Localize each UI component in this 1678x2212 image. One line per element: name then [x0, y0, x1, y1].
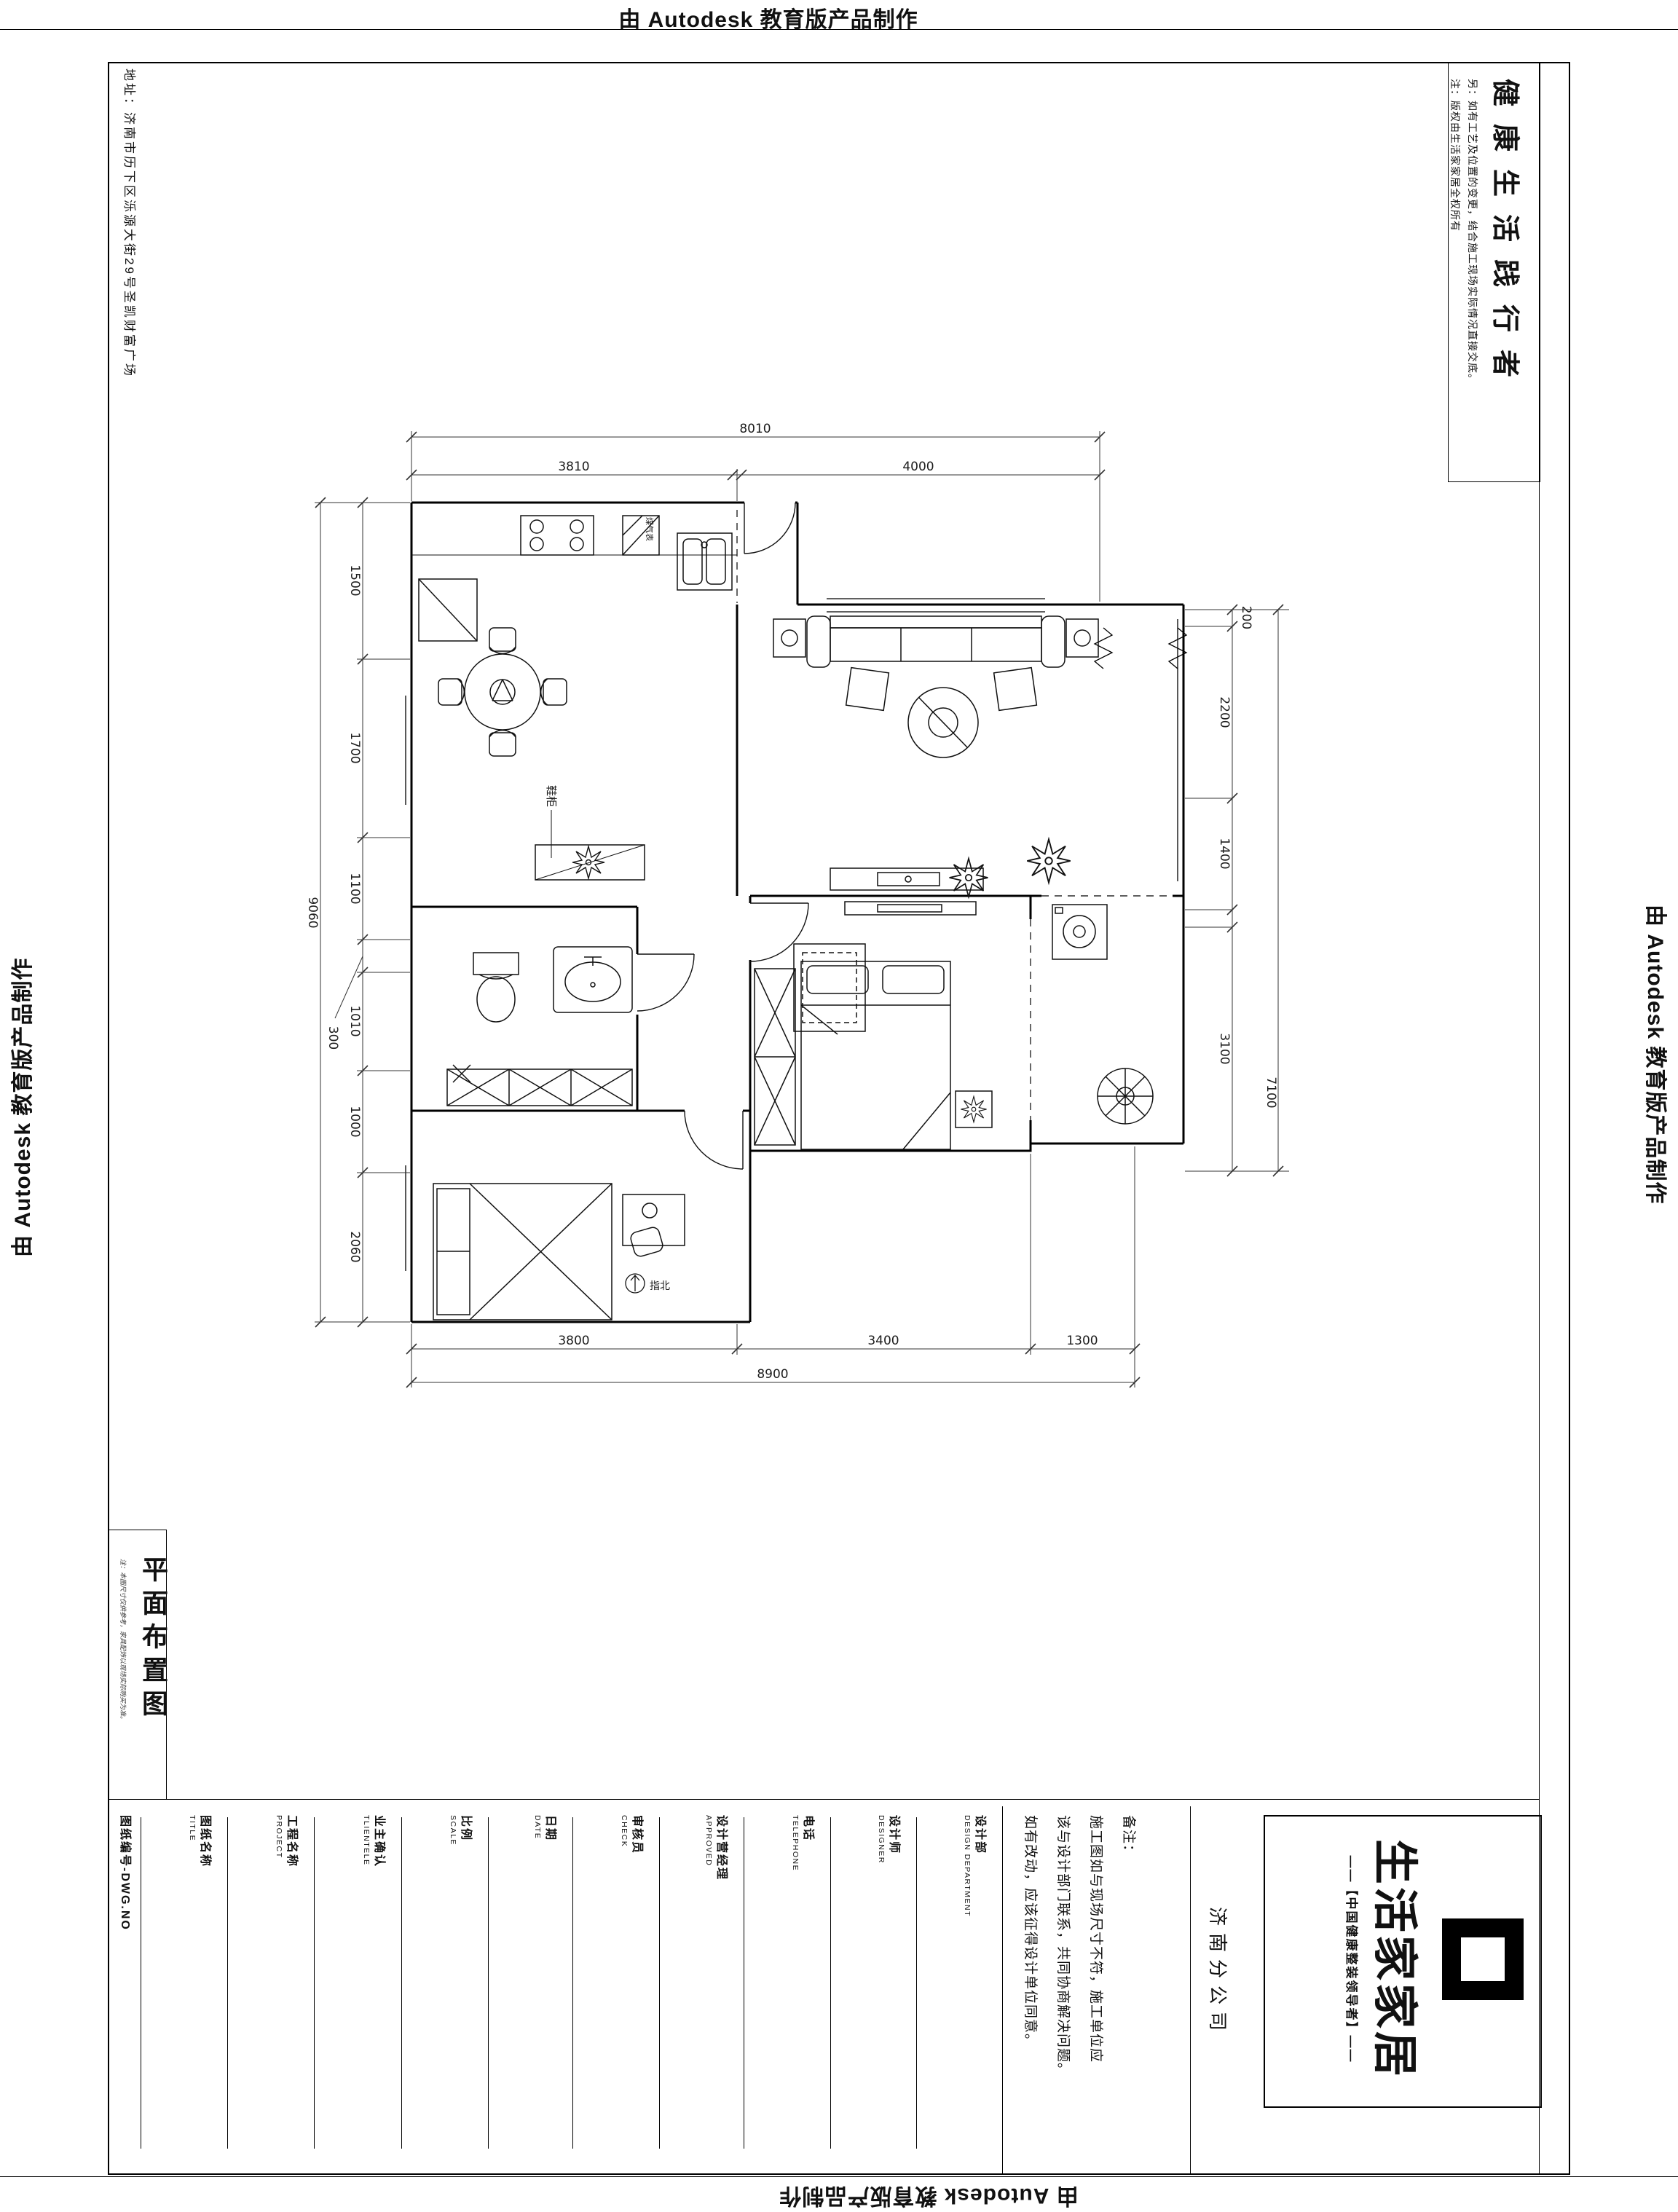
- dim-bottom-seg: 3400: [867, 1334, 899, 1348]
- tb-separator: [1190, 1806, 1191, 2175]
- tb-field-en: PROJECT: [275, 1815, 283, 2136]
- pillow: [807, 966, 868, 993]
- dining-set: [438, 628, 567, 756]
- tb-separator: [1002, 1806, 1003, 2175]
- toilet-tank: [473, 953, 519, 975]
- tb-field-approved: 设计营经理 APPROVED: [704, 1815, 732, 2136]
- windows: [406, 599, 1186, 1271]
- dim-right-seg: 3100: [1217, 1033, 1232, 1064]
- dresser: [845, 902, 976, 915]
- tb-field-department: 设计部 DESIGN DEPARTMENT: [963, 1815, 990, 2136]
- tb-field-en: DESIGNER: [877, 1815, 886, 2136]
- tb-remark: 备注： 施工图如与现场尺寸不符，施工单位应 该与设计部门联系，共同协商解决问题。…: [1014, 1815, 1145, 2157]
- brand-tagline: ——【中国健康整装领导者】——: [1344, 1835, 1362, 2083]
- dim-left-seg: 1000: [347, 1106, 362, 1137]
- plant: [950, 859, 988, 897]
- dim-top-total: 8010: [739, 422, 771, 436]
- tb-field-en: DATE: [533, 1815, 542, 2136]
- dim-right-total: 7100: [1264, 1077, 1278, 1108]
- dim-left-seg: 1500: [347, 564, 362, 596]
- bedside-rug: [794, 944, 865, 1031]
- dim-top-seg: 4000: [902, 460, 934, 474]
- dim-left-seg: 2060: [347, 1231, 362, 1262]
- brand-name: 生活家家居: [1366, 1835, 1432, 2083]
- tb-field-en: TITLE: [188, 1815, 197, 2136]
- tv: [878, 873, 940, 886]
- tb-field-dwgno: 图纸编号-DWG.NO: [117, 1815, 135, 2136]
- tb-branch: 济南分公司: [1205, 1907, 1232, 2125]
- small-bedroom: [433, 1184, 685, 1320]
- tb-field-en: CHECK: [620, 1815, 629, 2136]
- tb-separator: [314, 1817, 315, 2149]
- shoe-cabinet-label: 鞋柜: [545, 785, 558, 807]
- tb-field-client: 业主确认 TLIENTELE: [362, 1815, 390, 2136]
- pouf: [994, 668, 1037, 711]
- side-table: [773, 619, 805, 657]
- kitchen: [411, 516, 737, 641]
- tb-separator: [141, 1817, 141, 2149]
- brand-mark-icon: [1442, 1918, 1524, 2000]
- tb-field-zh: 工程名称: [285, 1815, 302, 2136]
- toilet-bowl: [477, 977, 515, 1022]
- tb-remark-line: 施工图如与现场尺寸不符，施工单位应: [1079, 1815, 1112, 2157]
- gas-meter-label: 煤气表: [645, 517, 655, 541]
- tb-field-zh: 日期: [543, 1815, 561, 2136]
- tb-field-zh: 审核员: [630, 1815, 647, 2136]
- tb-separator: [916, 1817, 917, 2149]
- stove: [521, 516, 594, 555]
- pillow: [883, 966, 944, 993]
- dim-left-total: 9060: [305, 897, 320, 928]
- dim-left-seg: 1100: [347, 873, 362, 904]
- dim-right-seg: 200: [1239, 606, 1253, 629]
- dim-left-seg: 1010: [347, 1005, 362, 1036]
- tb-field-check: 审核员 CHECK: [620, 1815, 647, 2136]
- side-table: [1066, 619, 1098, 657]
- tb-separator: [488, 1817, 489, 2149]
- tb-field-en: TELEPHONE: [791, 1815, 800, 2136]
- tb-separator: [659, 1817, 660, 2149]
- tb-field-en: APPROVED: [704, 1815, 713, 2136]
- master-bedroom: [755, 902, 992, 1149]
- dimension-labels: 8010 3810 4000 3800 3400 1300 8900 1500 …: [305, 422, 1278, 1382]
- doors: [637, 503, 808, 1169]
- laundry-balcony: [1052, 905, 1153, 1124]
- desk: [623, 1194, 685, 1245]
- pouf: [846, 668, 889, 711]
- dim-left-seg: 300: [326, 1026, 340, 1050]
- north-indicator: 指北: [626, 1274, 670, 1293]
- dashed-openings: [737, 510, 1173, 1120]
- tb-remark-title: 备注：: [1112, 1815, 1145, 2157]
- dim-top-seg: 3810: [558, 460, 589, 474]
- tb-field-en: SCALE: [449, 1815, 457, 2136]
- sofa-back: [830, 616, 1041, 628]
- tb-field-zh: 电话: [801, 1815, 819, 2136]
- shoe-cabinet: 鞋柜: [535, 785, 645, 880]
- dim-left-seg: 1700: [347, 732, 362, 763]
- tb-field-zh: 设计师: [887, 1815, 905, 2136]
- dim-right-seg: 2200: [1217, 696, 1232, 728]
- tb-field-zh: 业主确认: [372, 1815, 390, 2136]
- plant: [961, 1096, 986, 1122]
- walls: [411, 503, 1183, 1322]
- tb-field-telephone: 电话 TELEPHONE: [791, 1815, 819, 2136]
- tb-field-zh: 设计部: [973, 1815, 990, 2136]
- bedroom-tv: [878, 905, 942, 912]
- dim-right-seg: 1400: [1217, 838, 1232, 869]
- tb-field-designer: 设计师 DESIGNER: [877, 1815, 905, 2136]
- tb-field-en: TLIENTELE: [362, 1815, 371, 2136]
- tb-separator: [401, 1817, 402, 2149]
- tb-field-title: 图纸名称 TITLE: [188, 1815, 216, 2136]
- brand-logo: 生活家家居 ——【中国健康整装领导者】——: [1344, 1835, 1524, 2083]
- tb-field-zh: 比例: [459, 1815, 476, 2136]
- tb-field-project: 工程名称 PROJECT: [275, 1815, 302, 2136]
- bathroom: [447, 947, 632, 1106]
- living-room: [773, 616, 1098, 890]
- plant: [1027, 839, 1070, 882]
- dim-bottom-seg: 1300: [1066, 1334, 1098, 1348]
- rattan-mat: [1098, 1068, 1153, 1124]
- dim-bottom-total: 8900: [757, 1367, 788, 1382]
- tb-field-zh: 图纸名称: [198, 1815, 216, 2136]
- tb-field-scale: 比例 SCALE: [449, 1815, 476, 2136]
- drawing-sheet: 由 Autodesk 教育版产品制作 由 Autodesk 教育版产品制作 由 …: [0, 0, 1678, 2212]
- tb-field-date: 日期 DATE: [533, 1815, 561, 2136]
- tb-field-zh: 图纸编号-DWG.NO: [118, 1815, 135, 2136]
- north-label: 指北: [650, 1280, 670, 1292]
- dimension-lines: [315, 431, 1289, 1388]
- sofa-seat: [830, 628, 1041, 661]
- bed: [801, 961, 950, 1149]
- tb-separator: [572, 1817, 573, 2149]
- dim-bottom-seg: 3800: [558, 1334, 589, 1348]
- tb-separator: [744, 1817, 744, 2149]
- tb-remark-line: 如有改动，应该征得设计单位同意。: [1014, 1815, 1047, 2157]
- tb-field-en: DESIGN DEPARTMENT: [963, 1815, 972, 2136]
- tb-remark-line: 该与设计部门联系，共同协商解决问题。: [1047, 1815, 1079, 2157]
- basin: [565, 962, 621, 1001]
- tb-separator: [227, 1817, 228, 2149]
- desk-chair: [629, 1226, 664, 1258]
- tb-field-zh: 设计营经理: [714, 1815, 732, 2136]
- tb-separator: [830, 1817, 831, 2149]
